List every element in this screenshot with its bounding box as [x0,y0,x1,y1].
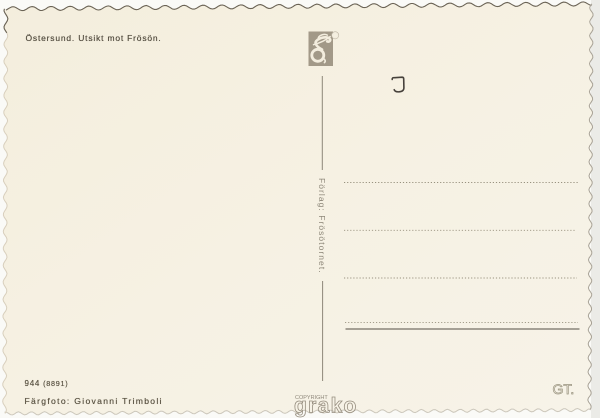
svg-text:GT.: GT. [553,381,575,397]
svg-text:grako: grako [294,395,358,418]
